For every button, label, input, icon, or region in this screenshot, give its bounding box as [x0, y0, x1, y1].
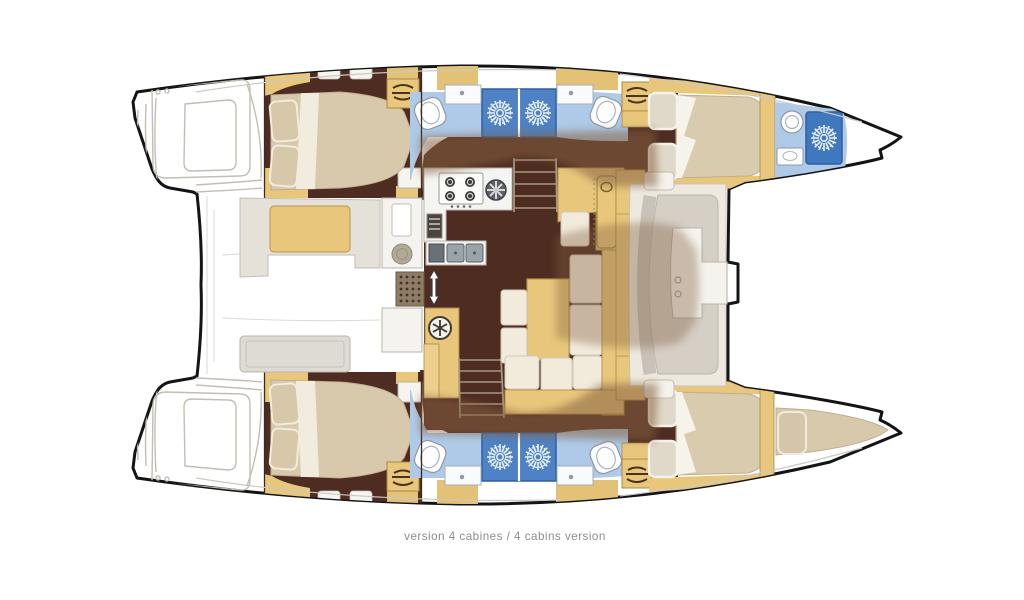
svg-text:version 4 cabines / 4 cabins v: version 4 cabines / 4 cabins version	[404, 530, 606, 543]
